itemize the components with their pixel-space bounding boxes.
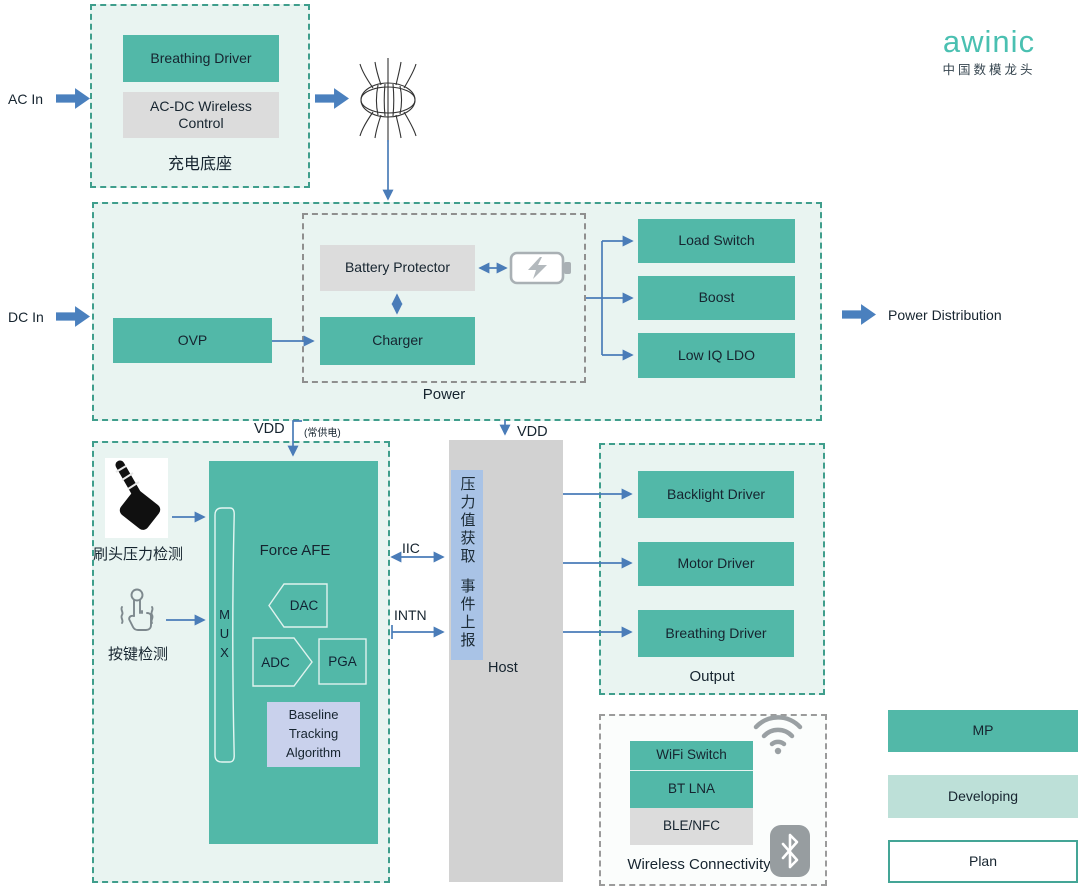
ovp-block: OVP — [113, 318, 272, 363]
wireless-coil-icon — [352, 58, 424, 142]
dac-block: DAC — [268, 583, 328, 628]
vdd-left-note: (常供电) — [304, 424, 341, 439]
ble-nfc-block: BLE/NFC — [630, 808, 753, 845]
battery-protector-block: Battery Protector — [320, 245, 475, 291]
power-distribution-label: Power Distribution — [888, 307, 1002, 323]
iic-label: IIC — [402, 540, 420, 556]
force-afe-title: Force AFE — [230, 542, 360, 559]
output-caption: Output — [599, 668, 825, 685]
ac-in-arrow — [56, 87, 90, 110]
host-strip-line1: 压力值获取 — [457, 476, 478, 566]
low-iq-ldo-block: Low IQ LDO — [638, 333, 795, 378]
legend-developing: Developing — [888, 775, 1078, 818]
charger-block: Charger — [320, 317, 475, 365]
backlight-driver-block: Backlight Driver — [638, 471, 794, 518]
host-function-strip: 压力值获取 事件上报 — [451, 470, 483, 660]
bt-lna-block: BT LNA — [630, 771, 753, 808]
mux-outline — [215, 508, 234, 762]
brush-head-photo — [105, 458, 168, 538]
key-press-icon — [113, 585, 161, 635]
motor-driver-block: Motor Driver — [638, 542, 794, 586]
adc-label: ADC — [261, 655, 290, 670]
mux-block: MUX — [212, 505, 237, 765]
breathing-driver-output-block: Breathing Driver — [638, 610, 794, 657]
wifi-switch-block: WiFi Switch — [630, 741, 753, 771]
vdd-left-label: VDD — [254, 421, 285, 437]
brand-tagline: 中国数模龙头 — [930, 59, 1048, 78]
bluetooth-icon — [770, 825, 810, 877]
adc-block: ADC — [252, 637, 313, 687]
intn-label: INTN — [394, 607, 427, 623]
awinic-logo: awinic — [930, 24, 1048, 60]
wifi-icon — [750, 711, 806, 755]
baseline-tracking-block: Baseline Tracking Algorithm — [267, 702, 360, 767]
load-switch-block: Load Switch — [638, 219, 795, 263]
ac-in-label: AC In — [8, 91, 43, 107]
host-strip-line2: 事件上报 — [457, 578, 478, 650]
key-detect-caption: 按键检测 — [92, 643, 184, 664]
wireless-caption: Wireless Connectivity — [601, 856, 797, 873]
legend-plan: Plan — [888, 840, 1078, 883]
host-caption: Host — [488, 660, 518, 676]
vdd-right-label: VDD — [517, 424, 548, 440]
dac-label: DAC — [290, 598, 319, 613]
breathing-driver-dock-block: Breathing Driver — [123, 35, 279, 82]
boost-block: Boost — [638, 276, 795, 320]
legend-mp: MP — [888, 710, 1078, 752]
dock-to-coil-arrow — [315, 87, 349, 110]
pga-block: PGA — [318, 638, 367, 685]
acdc-wireless-control-block: AC-DC Wireless Control — [123, 92, 279, 138]
dc-in-label: DC In — [8, 309, 44, 325]
brush-pressure-caption: 刷头压力检测 — [78, 543, 198, 564]
power-distribution-arrow — [842, 303, 876, 326]
pga-label: PGA — [328, 654, 357, 669]
dc-in-arrow — [56, 305, 90, 328]
charging-dock-caption: 充电底座 — [90, 150, 310, 174]
system-block-diagram: awinic 中国数模龙头 Breathing Driver AC-DC Wir… — [0, 0, 1080, 890]
battery-icon — [509, 249, 573, 287]
power-caption: Power — [302, 386, 586, 403]
